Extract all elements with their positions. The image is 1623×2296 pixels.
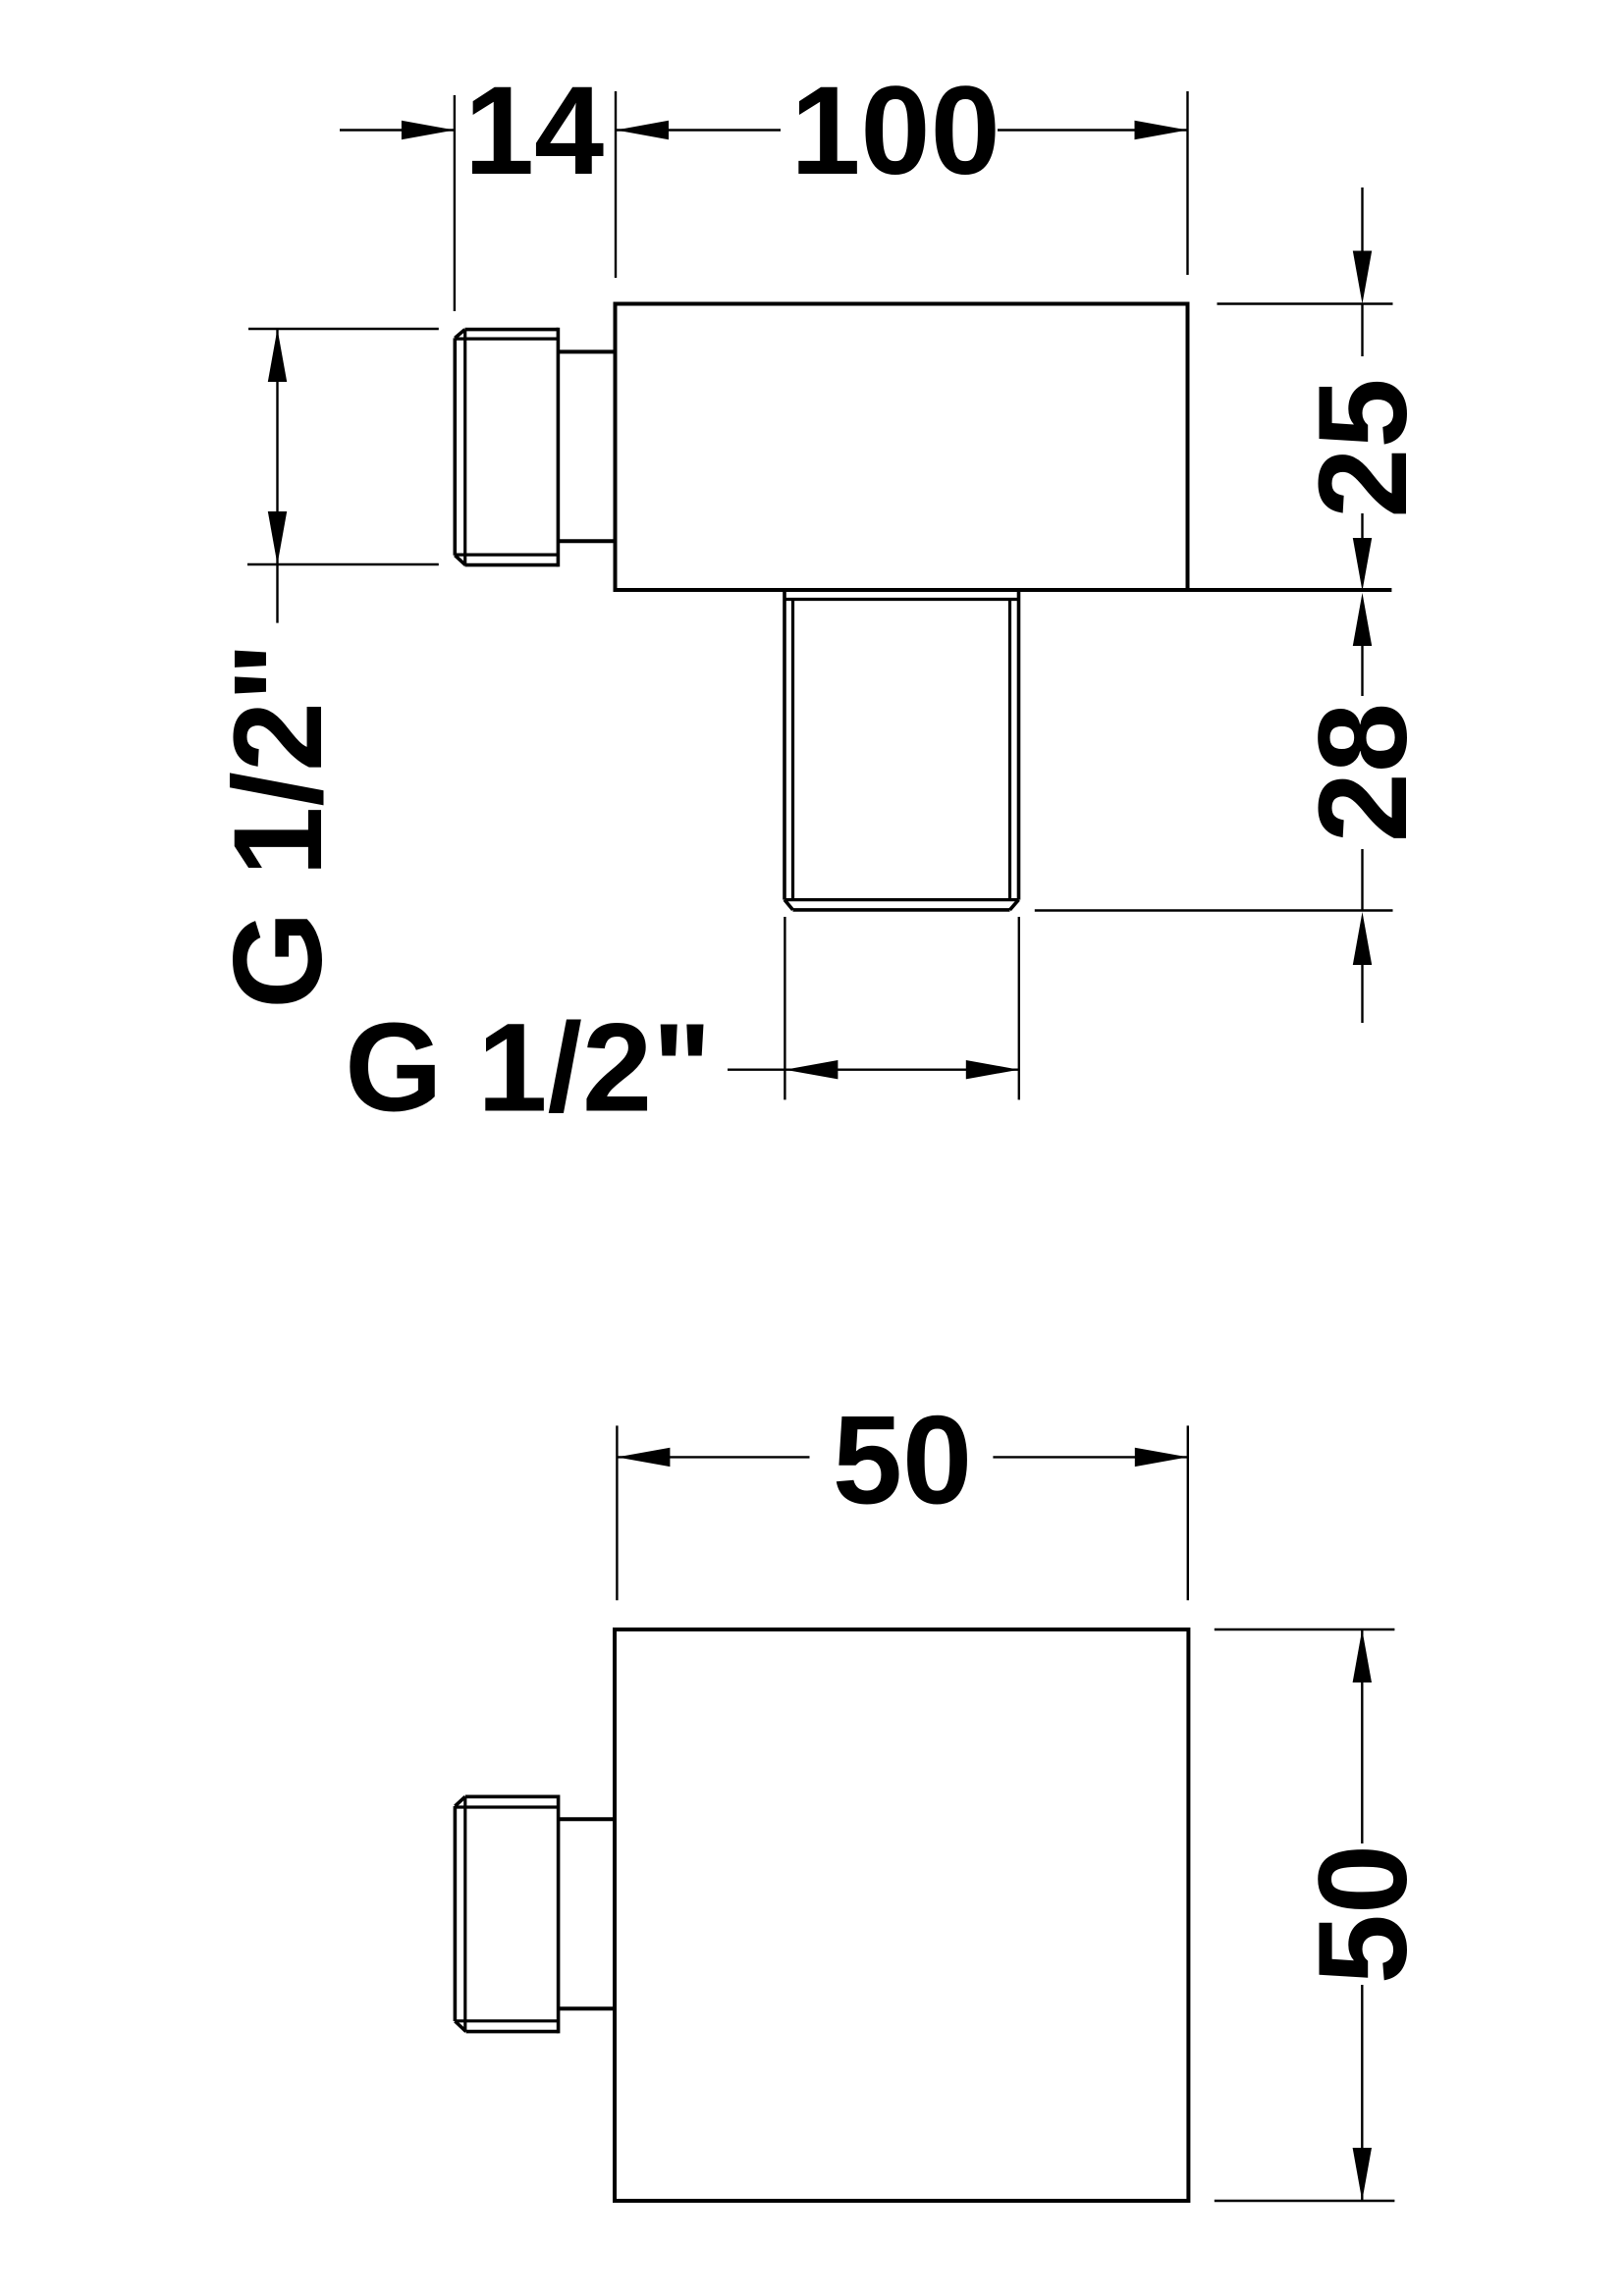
svg-text:G 1/2": G 1/2" — [345, 998, 712, 1139]
svg-text:50: 50 — [1293, 1844, 1434, 1984]
svg-text:100: 100 — [790, 61, 1001, 201]
svg-text:50: 50 — [833, 1391, 972, 1531]
svg-text:14: 14 — [464, 61, 604, 201]
svg-text:25: 25 — [1293, 378, 1434, 517]
svg-text:G 1/2": G 1/2" — [208, 642, 349, 1009]
svg-text:28: 28 — [1293, 703, 1434, 842]
